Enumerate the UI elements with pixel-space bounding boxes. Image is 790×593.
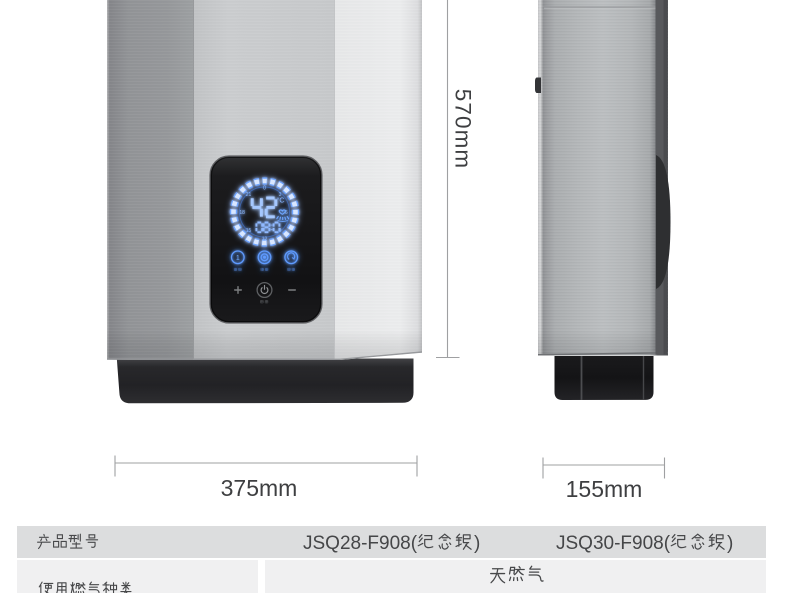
- svg-text:1: 1: [236, 255, 240, 262]
- svg-text:JSQ30-F908(: JSQ30-F908(: [556, 533, 671, 554]
- svg-text:155mm: 155mm: [566, 476, 643, 502]
- svg-text:): ): [474, 533, 480, 554]
- svg-text:°C: °C: [277, 196, 285, 205]
- svg-text:375mm: 375mm: [221, 475, 298, 501]
- svg-text:JSQ28-F908(: JSQ28-F908(: [303, 533, 418, 554]
- svg-text:18: 18: [239, 210, 245, 216]
- svg-text:12: 12: [262, 237, 268, 243]
- svg-text:15: 15: [246, 228, 252, 234]
- svg-text:): ): [727, 533, 733, 554]
- svg-text:21: 21: [246, 192, 252, 198]
- svg-text:0: 0: [263, 186, 266, 192]
- svg-text:570mm: 570mm: [451, 89, 476, 170]
